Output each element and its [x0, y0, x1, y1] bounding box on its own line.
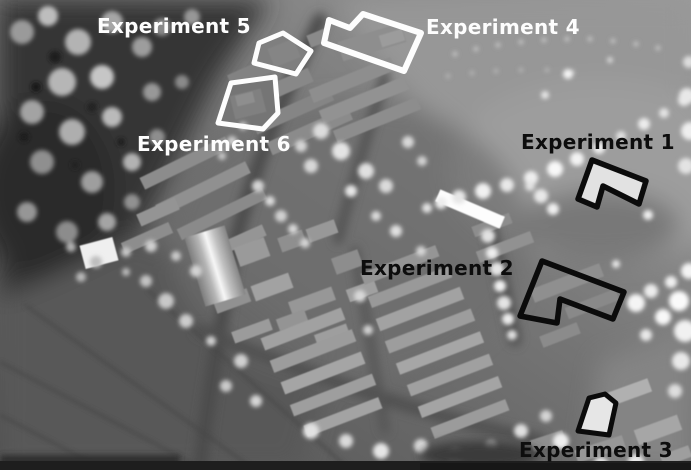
experiment-1-label: Experiment 1	[521, 132, 675, 152]
experiment-2-label: Experiment 2	[360, 258, 514, 278]
experiment-1-outline	[578, 160, 646, 207]
experiment-3-label: Experiment 3	[519, 440, 673, 460]
experiment-3-outline	[578, 394, 616, 435]
experiment-2-outline	[520, 261, 624, 323]
experiment-5-label: Experiment 5	[97, 16, 251, 36]
experiment-5-outline	[254, 33, 311, 74]
experiment-6-outline	[218, 77, 278, 129]
experiment-6-label: Experiment 6	[137, 134, 291, 154]
experiment-4-outline	[324, 14, 421, 71]
experiment-4-label: Experiment 4	[426, 17, 580, 37]
lidar-figure: Experiment 1 Experiment 2 Experiment 3 E…	[0, 0, 691, 470]
experiment-outlines-layer	[0, 0, 691, 470]
